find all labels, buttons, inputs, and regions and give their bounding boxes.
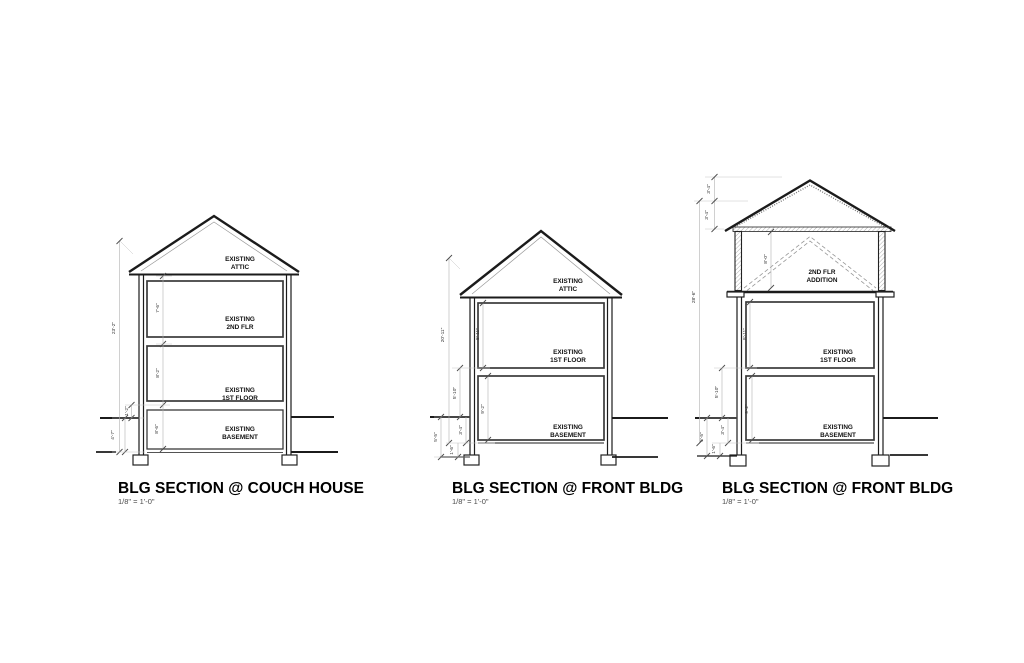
dim-first-to-grade: 1'-2" xyxy=(124,406,130,416)
dim-overall: 23'-2" xyxy=(111,322,117,335)
section-couch-house: 23'-2" 7'-6" 8'-2" 8'-6" 1'-2" 4'-7" EXI… xyxy=(96,216,364,506)
sections-svg: 23'-2" 7'-6" 8'-2" 8'-6" 1'-2" 4'-7" EXI… xyxy=(0,0,1024,663)
title-front-bldg-2: BLG SECTION @ FRONT BLDG xyxy=(722,480,953,497)
footing-right xyxy=(282,455,297,465)
room-first-floor xyxy=(147,346,283,401)
scale-front-bldg-1: 1/8" = 1'-0" xyxy=(452,497,489,506)
cornice-left xyxy=(727,292,744,297)
dim-basement: 8'-6" xyxy=(154,424,160,434)
dim-below-grade: 5'-5" xyxy=(433,432,439,442)
label-attic-1: EXISTING xyxy=(225,256,255,263)
dimension-lines xyxy=(434,255,495,460)
addition-wall-right xyxy=(879,232,886,291)
dim-first: 8'-11" xyxy=(742,328,748,340)
roof-inner-line xyxy=(472,237,610,294)
dim-ridge-upper: 3'-4" xyxy=(706,184,712,194)
dim-slab-to-footing: 1'-6" xyxy=(449,445,455,455)
section-front-bldg-addition: 3'-4" 3'-4" 28'-6" 8'-0" 8'-11" 9'-2" 5'… xyxy=(691,174,953,506)
footing-right xyxy=(872,455,889,466)
new-roof-outline xyxy=(725,181,895,232)
label-attic-2: ATTIC xyxy=(559,286,578,293)
label-basement-1: EXISTING xyxy=(823,424,853,431)
addition-wall-left xyxy=(735,232,742,291)
label-basement-2: BASEMENT xyxy=(820,432,856,439)
title-couch-house: BLG SECTION @ COUCH HOUSE xyxy=(118,480,364,497)
title-front-bldg-1: BLG SECTION @ FRONT BLDG xyxy=(452,480,683,497)
label-addition-2: ADDITION xyxy=(807,277,838,284)
label-first-2: 1ST FLOOR xyxy=(222,395,258,402)
dim-second: 7'-6" xyxy=(155,303,161,313)
dim-first: 8'-11" xyxy=(475,328,481,340)
dim-overall: 20'-11" xyxy=(440,327,446,342)
dim-first-to-grade: 5'-10" xyxy=(714,386,720,399)
addition-ceiling-band xyxy=(733,227,891,232)
label-first-1: EXISTING xyxy=(823,349,853,356)
dim-below-grade: 4'-7" xyxy=(110,430,116,440)
label-basement-1: EXISTING xyxy=(553,424,583,431)
label-first-1: EXISTING xyxy=(553,349,583,356)
new-roof-insulation xyxy=(735,185,885,227)
footing-left xyxy=(133,455,148,465)
label-attic-2: ATTIC xyxy=(231,264,250,271)
label-basement-1: EXISTING xyxy=(225,426,255,433)
dim-grade-to-slab: 3'-4" xyxy=(458,425,464,435)
label-first-2: 1ST FLOOR xyxy=(820,357,856,364)
grade-lines xyxy=(96,417,338,452)
label-basement-2: BASEMENT xyxy=(550,432,586,439)
dim-slab-to-footing: 1'-6" xyxy=(711,444,717,454)
dim-below-grade: 5'-5" xyxy=(699,432,705,442)
dim-basement: 9'-2" xyxy=(480,404,486,414)
room-basement xyxy=(478,376,604,440)
dim-basement: 9'-2" xyxy=(744,404,750,414)
label-basement-2: BASEMENT xyxy=(222,434,258,441)
label-second-2: 2ND FLR xyxy=(227,324,254,331)
dim-addition: 8'-0" xyxy=(763,254,769,264)
dim-grade-to-slab: 3'-4" xyxy=(720,425,726,435)
scale-couch-house: 1/8" = 1'-0" xyxy=(118,497,155,506)
room-basement xyxy=(746,376,874,440)
label-first-1: EXISTING xyxy=(225,387,255,394)
roof-outline xyxy=(460,231,622,295)
label-addition-1: 2ND FLR xyxy=(809,269,836,276)
scale-front-bldg-2: 1/8" = 1'-0" xyxy=(722,497,759,506)
room-basement xyxy=(147,410,283,449)
roof-inner-line xyxy=(141,222,287,271)
label-attic-1: EXISTING xyxy=(553,278,583,285)
drawing-sheet: 23'-2" 7'-6" 8'-2" 8'-6" 1'-2" 4'-7" EXI… xyxy=(0,0,1024,663)
dim-first: 8'-2" xyxy=(155,368,161,378)
room-second-floor xyxy=(147,281,283,337)
section-front-bldg-existing: 20'-11" 8'-11" 9'-2" 5'-10" 3'-4" 1'-6" … xyxy=(430,231,683,506)
exterior-walls xyxy=(139,275,291,455)
label-second-1: EXISTING xyxy=(225,316,255,323)
label-first-2: 1ST FLOOR xyxy=(550,357,586,364)
dim-overall: 28'-6" xyxy=(691,291,697,304)
cornice-right xyxy=(876,292,894,297)
dim-ridge-lower: 3'-4" xyxy=(704,210,710,220)
roof-outline xyxy=(129,216,299,272)
dim-first-to-grade: 5'-10" xyxy=(452,387,458,400)
grade-lines xyxy=(695,418,938,456)
